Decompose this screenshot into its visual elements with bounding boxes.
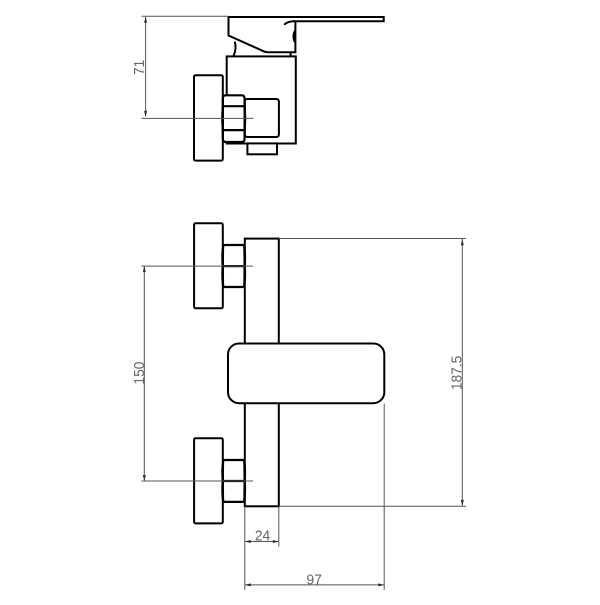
svg-text:71: 71 bbox=[132, 60, 149, 75]
svg-text:24: 24 bbox=[255, 528, 270, 545]
svg-text:150: 150 bbox=[131, 362, 148, 385]
svg-text:97: 97 bbox=[307, 572, 322, 589]
svg-text:187.5: 187.5 bbox=[449, 356, 466, 391]
